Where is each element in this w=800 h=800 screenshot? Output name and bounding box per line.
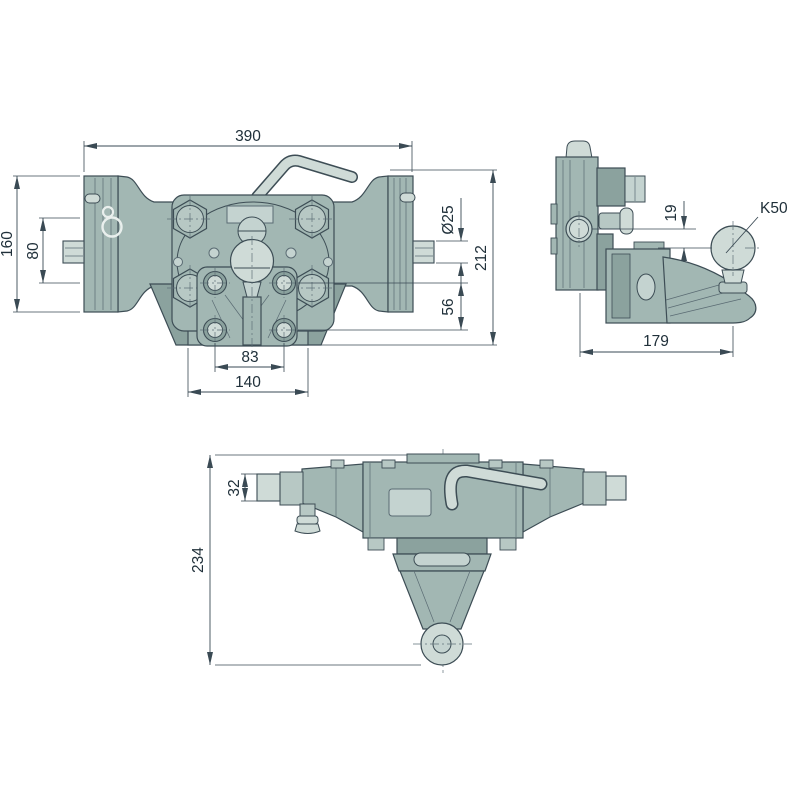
right-plate-pin bbox=[400, 193, 415, 202]
right-end-plate bbox=[388, 176, 415, 312]
side-view: 19 K50 179 bbox=[551, 141, 788, 357]
technical-drawing-canvas: 390 160 80 Ø25 212 bbox=[0, 0, 800, 800]
dim-19-label: 19 bbox=[663, 204, 680, 221]
top-bottom-stack bbox=[368, 538, 516, 629]
dim-179-label: 179 bbox=[643, 333, 669, 350]
front-view: 390 160 80 Ø25 212 bbox=[0, 128, 497, 397]
left-plate-pin bbox=[85, 194, 100, 203]
dim-k50-label: K50 bbox=[760, 200, 788, 217]
dim-160-label: 160 bbox=[0, 231, 16, 257]
ball-neck-side bbox=[722, 270, 744, 283]
left-stub-shaft bbox=[63, 241, 84, 263]
dim-83-label: 83 bbox=[241, 349, 258, 366]
upper-bolt-head bbox=[625, 176, 645, 202]
dim-shaft-height: 32 bbox=[226, 474, 257, 501]
towball-technical-drawing: 390 160 80 Ø25 212 bbox=[0, 0, 800, 800]
mount-legs bbox=[400, 571, 484, 629]
top-center-block bbox=[331, 454, 553, 538]
dim-234-label: 234 bbox=[190, 547, 207, 573]
dim-140-label: 140 bbox=[235, 374, 261, 391]
dim-56-label: 56 bbox=[440, 298, 457, 315]
plate-tab-lower bbox=[551, 238, 557, 254]
stack-tab-right bbox=[500, 538, 516, 550]
dim-pin-diameter: Ø25 bbox=[436, 198, 468, 285]
mount-capsule bbox=[414, 553, 470, 566]
lower-bracket bbox=[606, 242, 670, 323]
top-cap bbox=[566, 141, 592, 158]
stack-tab-left bbox=[368, 538, 384, 550]
release-handle bbox=[257, 161, 352, 197]
top-left-shaft bbox=[280, 472, 303, 505]
left-end-plate bbox=[84, 176, 122, 312]
towball-top bbox=[413, 623, 472, 665]
top-right-shaft bbox=[583, 472, 606, 505]
dim-o25-label: Ø25 bbox=[440, 205, 457, 234]
dim-80-label: 80 bbox=[25, 242, 42, 260]
plate-tab-upper bbox=[551, 204, 557, 224]
top-left-pin bbox=[257, 474, 280, 501]
dim-212-label: 212 bbox=[473, 245, 490, 271]
top-label-plate bbox=[389, 489, 431, 516]
upper-block bbox=[597, 168, 625, 206]
dim-flange-bolt-horizontal: 83 bbox=[215, 343, 284, 372]
dim-32-label: 32 bbox=[226, 479, 243, 496]
top-right-pin bbox=[606, 476, 626, 500]
dim-390-label: 390 bbox=[235, 128, 261, 145]
right-stub-shaft bbox=[413, 241, 434, 263]
top-right-arm bbox=[523, 464, 626, 532]
bracket-hole bbox=[637, 274, 655, 300]
dim-overall-width: 390 bbox=[84, 128, 412, 172]
side-bolt bbox=[599, 208, 633, 234]
ball-collar bbox=[719, 282, 747, 293]
top-center-raised bbox=[407, 454, 479, 463]
top-view: 234 32 bbox=[190, 449, 626, 673]
